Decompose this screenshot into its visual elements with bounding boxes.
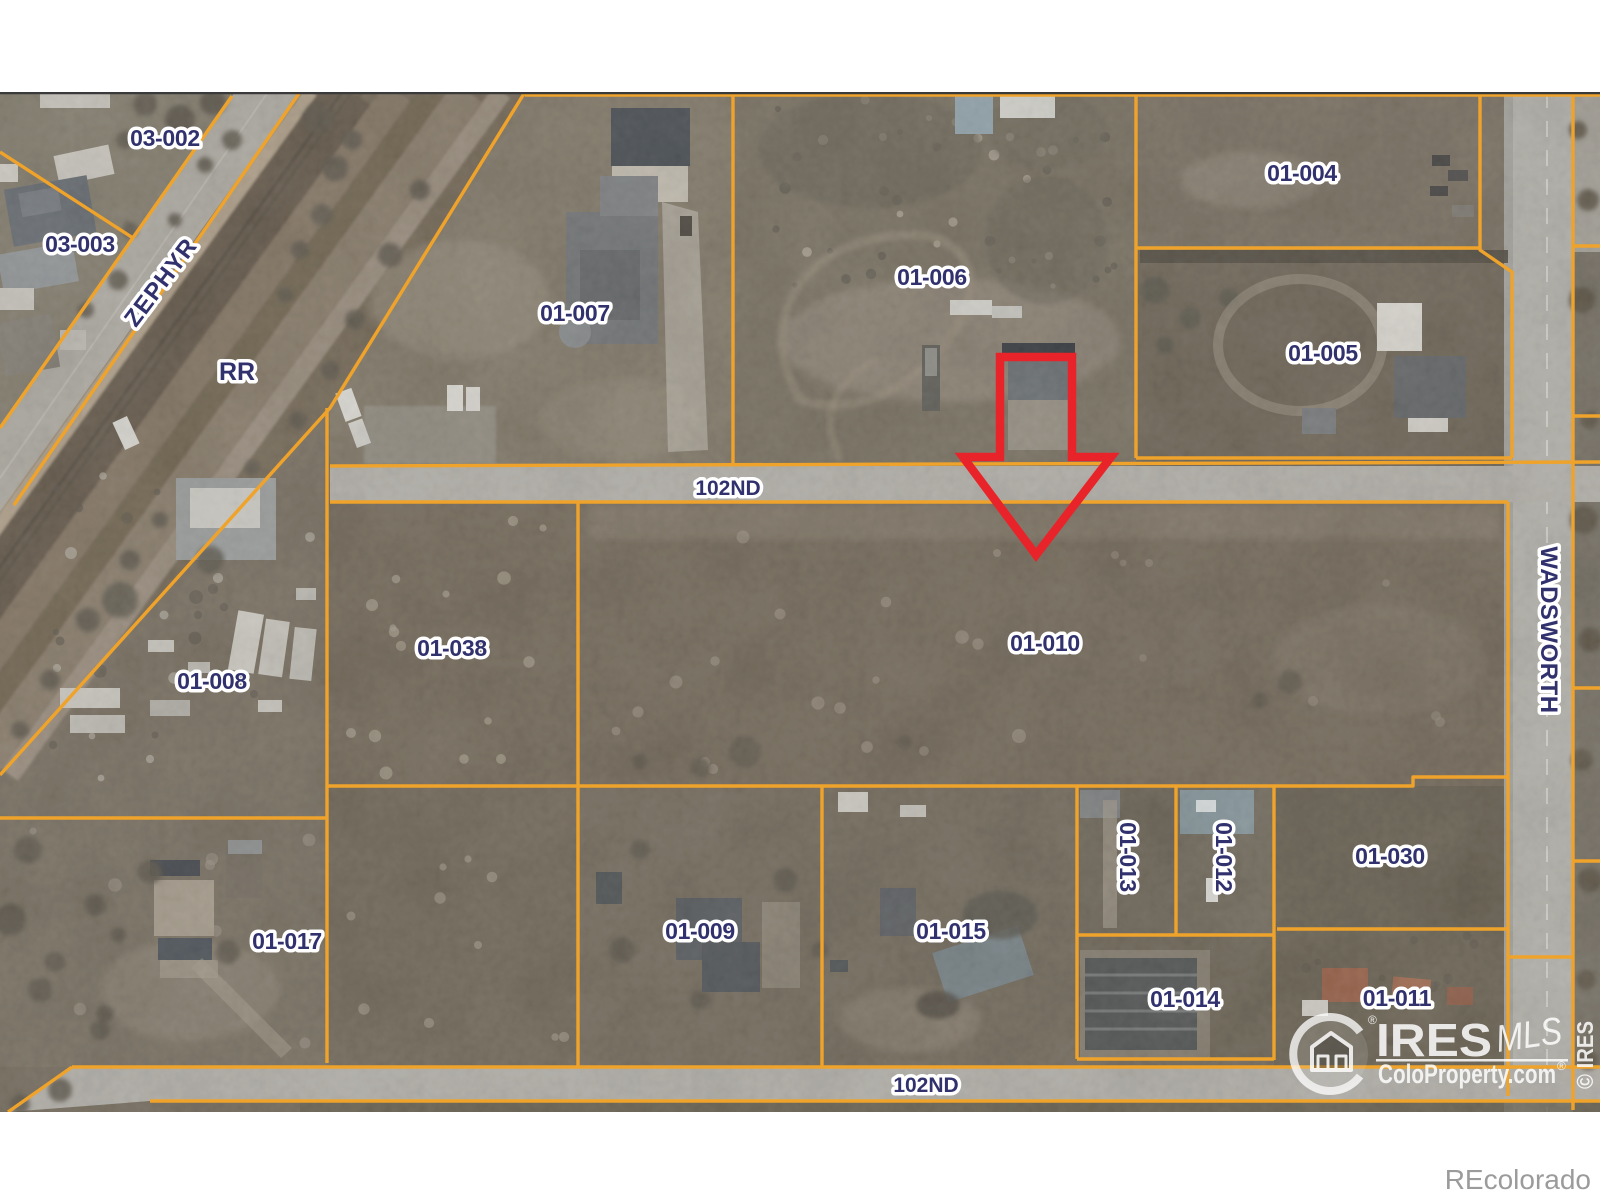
- svg-text:01-017: 01-017: [252, 928, 322, 954]
- svg-text:© IRES: © IRES: [1572, 1021, 1598, 1089]
- svg-text:01-008: 01-008: [177, 668, 247, 694]
- svg-text:102ND: 102ND: [695, 477, 760, 500]
- svg-text:01-014: 01-014: [1150, 986, 1220, 1012]
- svg-text:01-013: 01-013: [1115, 822, 1141, 892]
- svg-text:®: ®: [1368, 1013, 1377, 1027]
- svg-text:RR: RR: [219, 358, 255, 386]
- svg-text:01-011: 01-011: [1363, 985, 1432, 1011]
- svg-text:01-009: 01-009: [665, 918, 735, 944]
- svg-text:01-038: 01-038: [417, 635, 487, 661]
- svg-text:01-007: 01-007: [540, 300, 610, 326]
- svg-text:01-010: 01-010: [1010, 630, 1080, 656]
- svg-text:01-015: 01-015: [916, 918, 986, 944]
- svg-text:01-005: 01-005: [1288, 340, 1358, 366]
- svg-text:03-003: 03-003: [45, 231, 115, 257]
- svg-text:01-004: 01-004: [1267, 160, 1337, 186]
- svg-text:102ND: 102ND: [893, 1074, 958, 1097]
- svg-text:ColoProperty.com: ColoProperty.com: [1378, 1059, 1556, 1089]
- svg-text:03-002: 03-002: [130, 125, 200, 151]
- svg-text:01-030: 01-030: [1355, 843, 1425, 869]
- svg-text:WADSWORTH: WADSWORTH: [1535, 546, 1562, 713]
- svg-text:®: ®: [1557, 1059, 1566, 1073]
- svg-text:01-006: 01-006: [897, 264, 967, 290]
- svg-text:01-012: 01-012: [1211, 822, 1237, 892]
- svg-text:REcolorado: REcolorado: [1445, 1164, 1591, 1195]
